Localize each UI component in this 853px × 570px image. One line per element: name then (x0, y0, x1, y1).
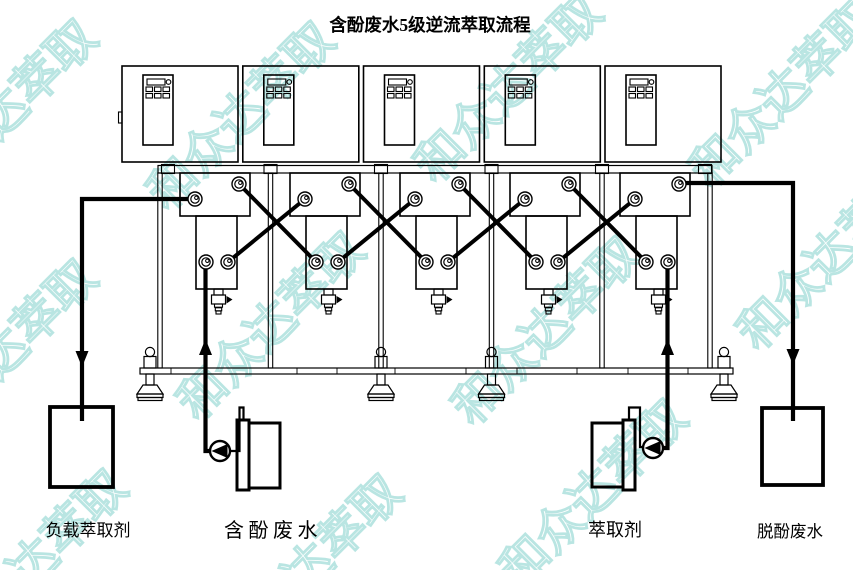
arrow-down-icon (787, 349, 800, 365)
label-loaded-extractant: 负载萃取剂 (46, 521, 131, 540)
label-dephenolized-wastewater: 脱酚废水 (757, 522, 824, 541)
page-title: 含酚废水5级逆流萃取流程 (329, 15, 531, 35)
phenol-wastewater-tank (249, 423, 280, 488)
label-extractant: 萃取剂 (588, 520, 642, 540)
extraction-process-diagram: 和众达萃取 和众达萃取 和众达萃取 和众达萃取 和众达萃取 和众达萃取 和众达萃… (0, 0, 853, 570)
arrow-down-icon (76, 351, 89, 367)
arrow-up-icon (661, 339, 674, 355)
cross-pipe (448, 199, 525, 262)
watermark: 和众达萃取 和众达萃取 和众达萃取 和众达萃取 和众达萃取 和众达萃取 和众达萃… (0, 0, 853, 570)
arrow-up-icon (199, 339, 212, 355)
diagram-page: 和众达萃取 和众达萃取 和众达萃取 和众达萃取 和众达萃取 和众达萃取 和众达萃… (0, 0, 853, 570)
cross-pipe (228, 199, 305, 262)
frame-post (489, 173, 493, 368)
extractant-feed-pump (643, 438, 663, 458)
label-phenol-wastewater: 含酚废水 (224, 519, 322, 542)
phenol-feed-pump (210, 441, 230, 461)
